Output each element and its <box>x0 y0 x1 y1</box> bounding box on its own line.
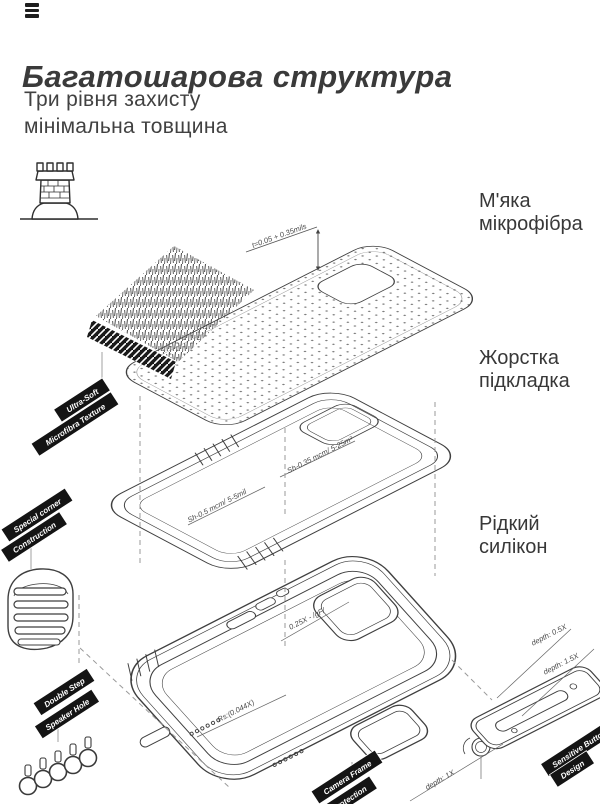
product-structure-illustration: t=0.05 + 0.35mils Sh-0.35 mcm/ 5-25m² Sh… <box>0 0 600 804</box>
speaker-holes-detail <box>20 737 97 795</box>
corner-bumper-detail <box>8 569 73 649</box>
annotation-button-depth-small: depth: 0.5X <box>530 622 569 648</box>
castle-icon <box>20 163 98 219</box>
silicone-layer <box>114 543 472 790</box>
annotation-microfiber-thickness: t=0.05 + 0.35mils <box>251 221 308 249</box>
dimension-microfiber-thickness: t=0.05 + 0.35mils <box>246 221 318 270</box>
microfiber-layer <box>87 240 484 430</box>
lining-layer <box>95 385 466 577</box>
annotation-camera-depth: depth: 1X <box>424 767 457 791</box>
